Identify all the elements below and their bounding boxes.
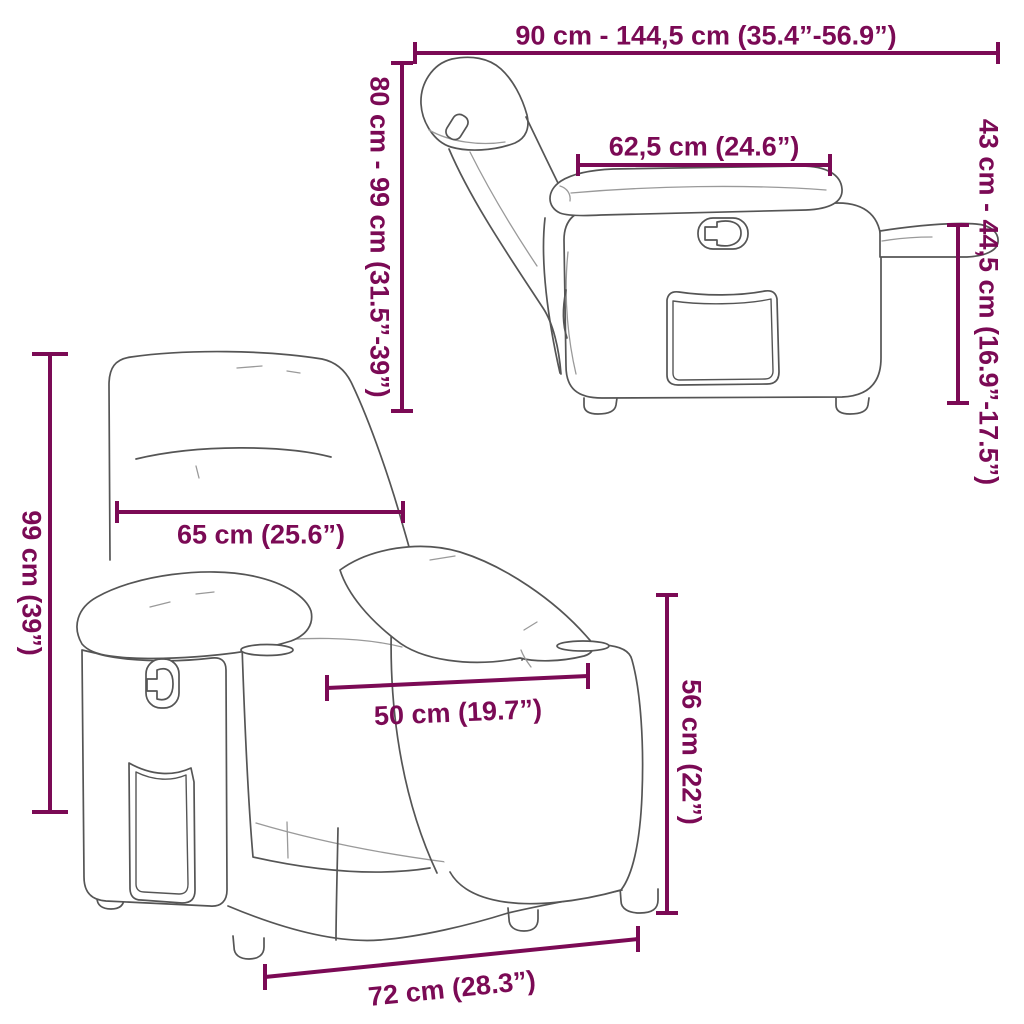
side-foot-right xyxy=(836,398,869,414)
chair-line-art-canvas xyxy=(0,0,1024,1024)
side-pocket-outer xyxy=(667,291,779,385)
dim-label-side-backrest-height: 80 cm - 99 cm (31.5”-39”) xyxy=(366,76,393,397)
dim-label-side-armrest-depth: 62,5 cm (24.6”) xyxy=(609,134,800,161)
front-base-bottom-edge xyxy=(228,906,508,940)
front-pocket-outer xyxy=(129,763,195,903)
front-foot-side-right xyxy=(620,887,658,913)
front-right-cupholder-slot xyxy=(557,641,609,651)
dim-label-front-armrest-height: 56 cm (22”) xyxy=(678,679,705,825)
front-left-cupholder-slot xyxy=(241,645,293,656)
front-view-chair xyxy=(77,352,658,959)
side-foot-left xyxy=(584,398,617,414)
dim-label-side-total-length: 90 cm - 144,5 cm (35.4”-56.9”) xyxy=(515,23,896,50)
front-foot-front-left xyxy=(233,936,264,959)
side-view-chair xyxy=(421,57,998,414)
dimension-diagram-page: 90 cm - 144,5 cm (35.4”-56.9”) 80 cm - 9… xyxy=(0,0,1024,1024)
dim-label-front-backrest-width: 65 cm (25.6”) xyxy=(177,522,345,549)
dim-label-side-seat-height: 43 cm - 44,5 cm (16.9”-17.5”) xyxy=(975,119,1002,485)
dim-line-front-armrest-height xyxy=(656,595,678,913)
dim-label-front-total-height: 99 cm (39”) xyxy=(18,510,45,656)
side-headrest-pillow xyxy=(421,57,528,150)
front-right-armrest-panel-fill xyxy=(410,635,644,904)
